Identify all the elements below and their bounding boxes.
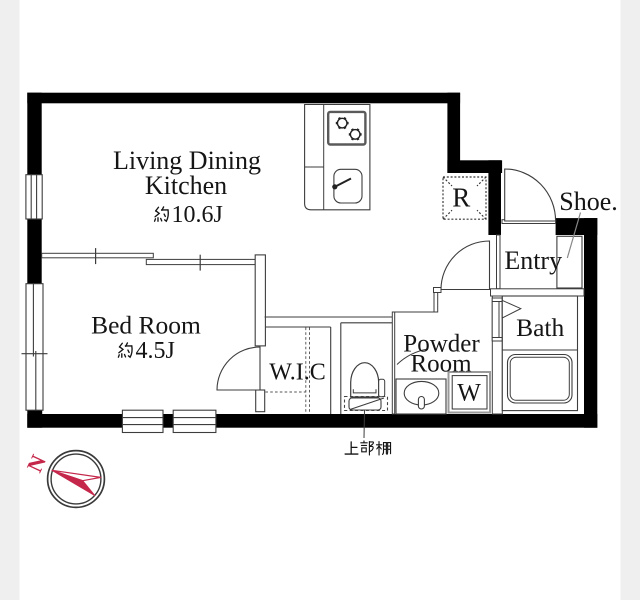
svg-text:Kitchen: Kitchen — [145, 171, 227, 200]
svg-text:Entry: Entry — [504, 246, 562, 275]
svg-text:Bed Room: Bed Room — [91, 310, 201, 339]
svg-text:W.I.C: W.I.C — [269, 360, 325, 386]
svg-text:W: W — [457, 380, 481, 407]
svg-text:10.6J: 10.6J — [172, 202, 223, 228]
svg-text:Room: Room — [410, 351, 472, 378]
svg-text:4.5J: 4.5J — [136, 338, 175, 364]
svg-text:Bath: Bath — [516, 313, 564, 342]
svg-text:R: R — [452, 183, 470, 213]
svg-text:Shoe.: Shoe. — [559, 187, 618, 216]
